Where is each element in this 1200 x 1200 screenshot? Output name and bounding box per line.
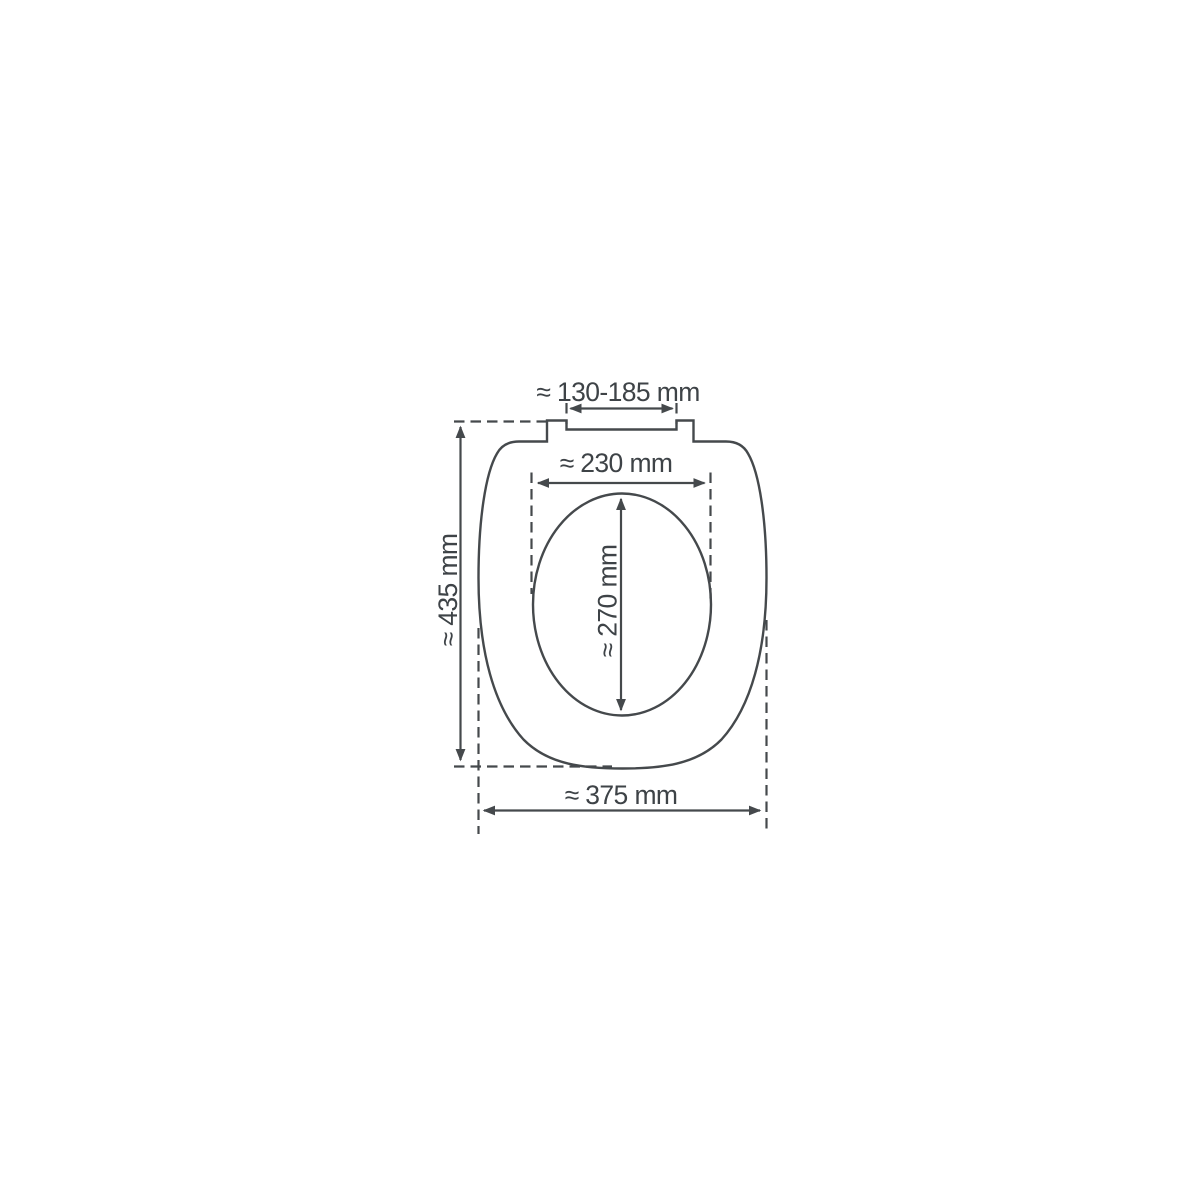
- inner-width-label: ≈ 230 mm: [560, 448, 673, 478]
- hinge-width-label: ≈ 130-185 mm: [536, 377, 699, 407]
- dimension-diagram: ≈ 130-185 mm ≈ 230 mm ≈ 270 mm ≈ 435 mm …: [0, 0, 1200, 1200]
- inner-length-label: ≈ 270 mm: [593, 545, 623, 658]
- diagram-canvas: ≈ 130-185 mm ≈ 230 mm ≈ 270 mm ≈ 435 mm …: [0, 0, 1200, 1200]
- overall-width-label: ≈ 375 mm: [565, 780, 678, 810]
- overall-length-label: ≈ 435 mm: [433, 534, 463, 647]
